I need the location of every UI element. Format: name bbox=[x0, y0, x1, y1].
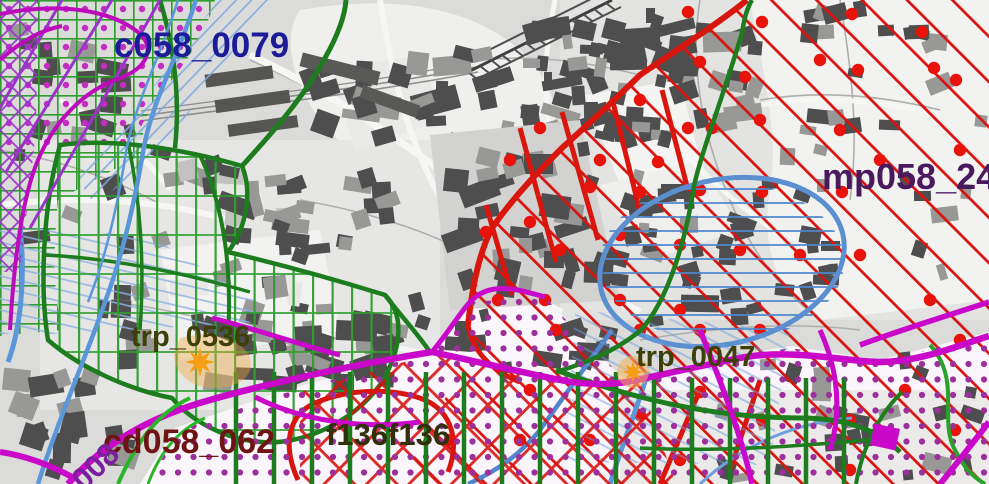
svg-text:f136f136: f136f136 bbox=[326, 417, 450, 452]
svg-text:trp_0536: trp_0536 bbox=[131, 321, 250, 353]
svg-text:trp_0047: trp_0047 bbox=[636, 341, 755, 373]
svg-text:cd058_062: cd058_062 bbox=[103, 423, 275, 461]
svg-text:mp058_24: mp058_24 bbox=[822, 156, 989, 197]
svg-text:c058_0079: c058_0079 bbox=[114, 26, 289, 65]
